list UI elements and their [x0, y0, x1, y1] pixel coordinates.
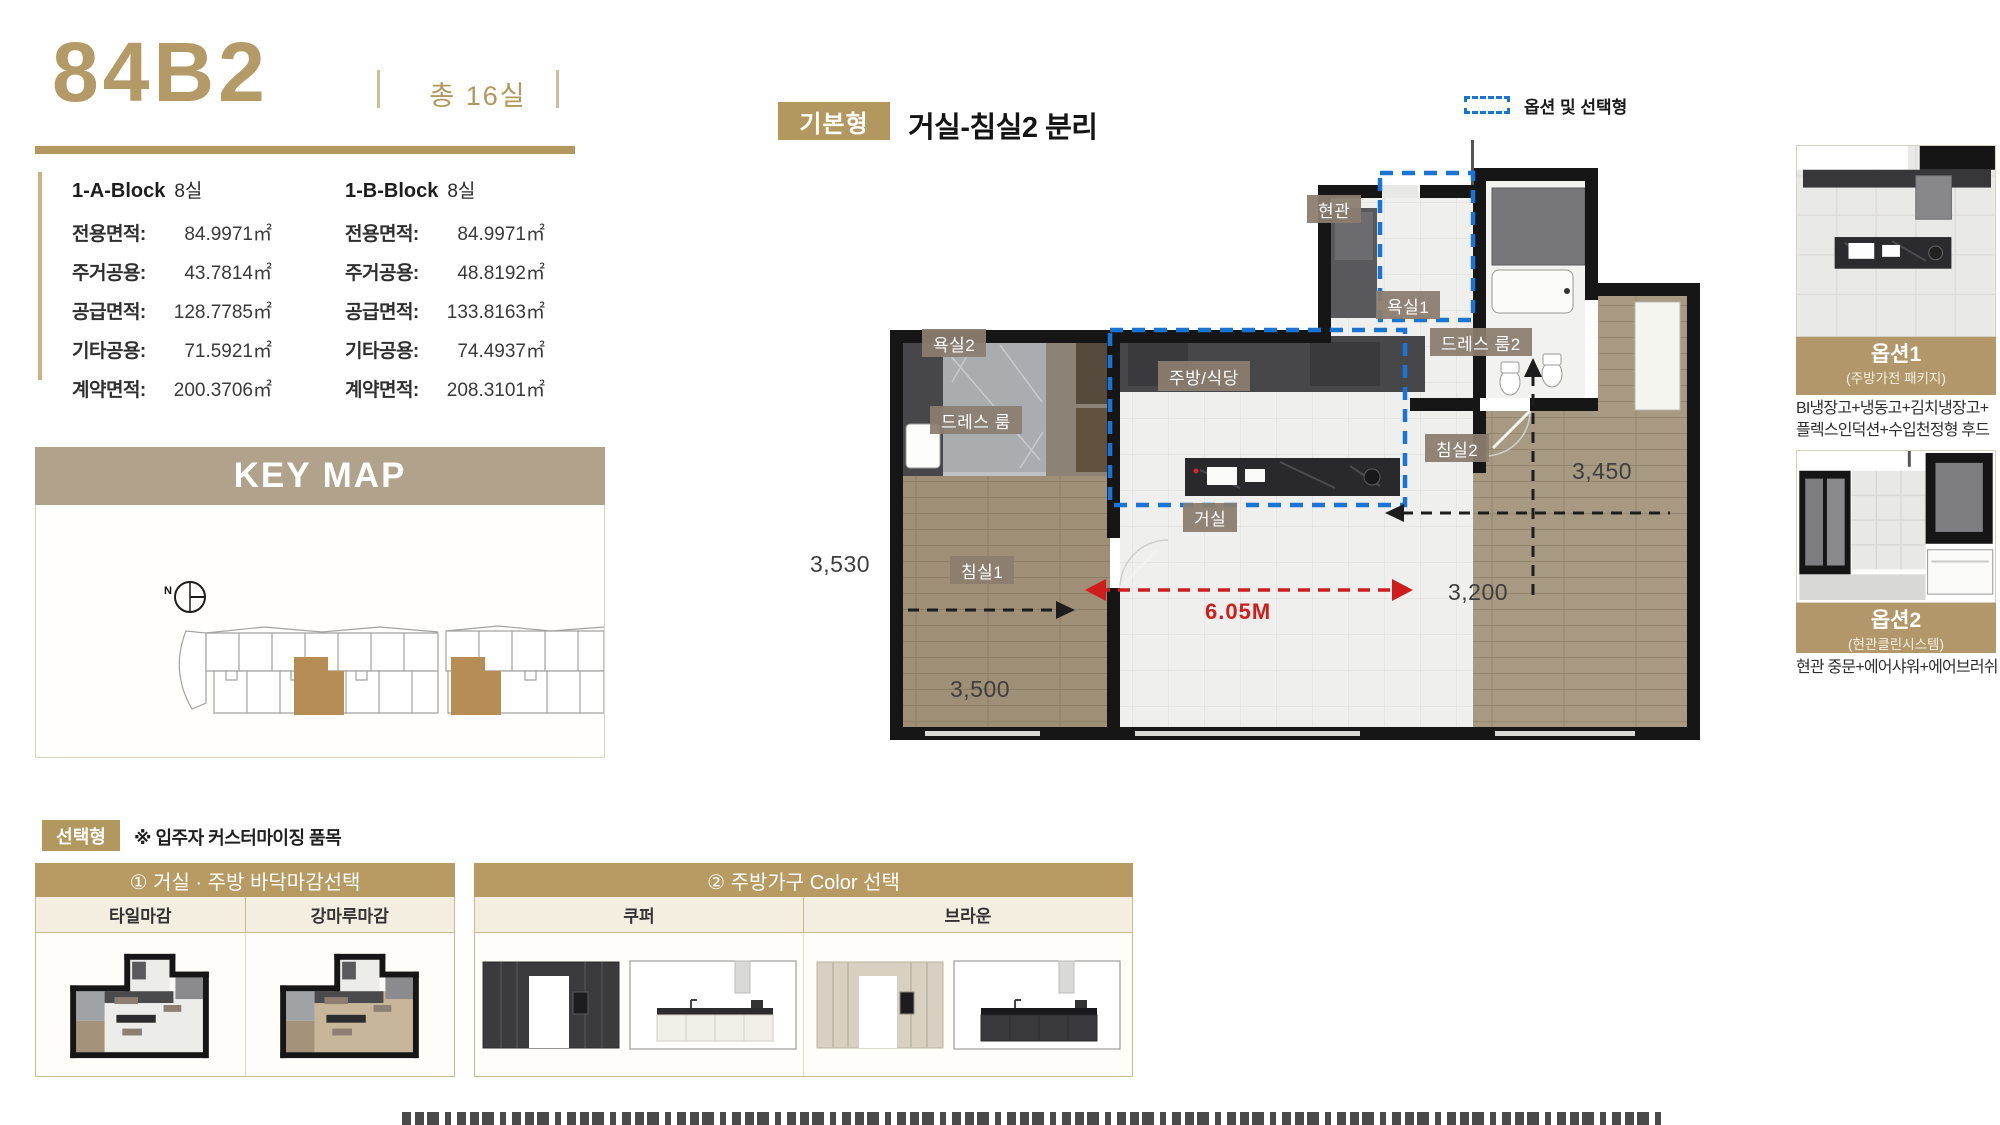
panel1-box: 타일마감 강마루마감	[35, 897, 455, 1077]
block-name: 1-A-Block	[72, 180, 165, 202]
panel1-title: ① 거실 · 주방 바닥마감선택	[130, 866, 361, 895]
option1-band: 옵션1 (주방가전 패키지)	[1796, 337, 1996, 395]
select-type-badge: 선택형	[42, 820, 120, 851]
dim-3200: 3,200	[1448, 579, 1508, 606]
panel2-title-bar: ② 주방가구 Color 선택	[474, 863, 1133, 897]
table-left-border	[38, 172, 42, 380]
dressroom2-closet	[1492, 188, 1585, 265]
living-floor	[1120, 336, 1473, 727]
tile-finish-thumbnail	[36, 933, 245, 1076]
room-label-dress2: 드레스 룸2	[1430, 328, 1532, 356]
table-row: 계약면적:200.3706㎡	[72, 375, 272, 402]
room-label-entrance: 현관	[1307, 195, 1361, 223]
keymap-panel: N	[35, 505, 605, 758]
option1-description: BI냉장고+냉동고+김치냉장고+ 플렉스인덕션+수입천정형 후드	[1796, 398, 2000, 442]
dim-3530: 3,530	[810, 551, 870, 578]
option2-band: 옵션2 (현관클린시스템)	[1796, 603, 1996, 653]
room-label-living: 거실	[1183, 503, 1237, 532]
keymap-title-bar: KEY MAP	[35, 447, 605, 505]
option-legend-label: 옵션 및 선택형	[1524, 93, 1627, 118]
block-b-header: 1-B-Block8실	[345, 176, 545, 203]
table-row: 주거공용:43.7814㎡	[72, 258, 272, 285]
block-rooms: 8실	[174, 181, 202, 202]
brochure-page: 84B2 총 16실 1-A-Block8실 전용면적:84.9971㎡ 주거공…	[0, 0, 2000, 1125]
brown-thumbnails	[803, 933, 1132, 1076]
brown-cabinet-image	[815, 960, 945, 1050]
brown-counter-image	[953, 960, 1121, 1050]
table-row: 계약면적:208.3101㎡	[345, 375, 545, 402]
table-row: 전용면적:84.9971㎡	[345, 219, 545, 246]
copper-cabinet-image	[481, 960, 621, 1050]
table-row: 기타공용:74.4937㎡	[345, 336, 545, 363]
option-legend-swatch	[1464, 96, 1510, 114]
room-label-bed1: 침실1	[950, 556, 1014, 584]
mini-floorplan-tile	[64, 946, 216, 1064]
table-row: 전용면적:84.9971㎡	[72, 219, 272, 246]
panel2-box: 쿠퍼 브라운	[474, 897, 1133, 1077]
keymap-building-outline	[206, 626, 604, 713]
table-row: 주거공용:48.8192㎡	[345, 258, 545, 285]
block-b-column: 1-B-Block8실 전용면적:84.9971㎡ 주거공용:48.8192㎡ …	[345, 176, 545, 414]
table-row: 기타공용:71.5921㎡	[72, 336, 272, 363]
room-label-bed2: 침실2	[1425, 434, 1489, 462]
panel1-column-headers: 타일마감 강마루마감	[36, 897, 454, 933]
option1-image	[1796, 145, 1996, 337]
column-tile-finish: 타일마감	[36, 897, 245, 932]
room-label-dress: 드레스 룸	[930, 406, 1022, 434]
option2-description: 현관 중문+에어샤워+에어브러쉬	[1796, 657, 2000, 679]
dim-605m: 6.05M	[1205, 599, 1271, 625]
block-name: 1-B-Block	[345, 180, 438, 202]
divider-bar	[377, 70, 380, 108]
cropped-disclaimer-text	[402, 1112, 1662, 1125]
block-a-column: 1-A-Block8실 전용면적:84.9971㎡ 주거공용:43.7814㎡ …	[72, 176, 272, 414]
option2-image	[1796, 450, 1996, 603]
column-wood-finish: 강마루마감	[245, 897, 455, 932]
copper-counter-image	[629, 960, 797, 1050]
room-label-kitchen: 주방/식당	[1158, 361, 1250, 391]
floor-plan-drawing	[880, 130, 1710, 755]
gold-rule	[35, 146, 575, 154]
copper-thumbnails	[475, 933, 803, 1076]
dim-3500: 3,500	[950, 676, 1010, 703]
keymap-curved-wing	[179, 631, 206, 709]
option2-subtitle: (현관클린시스템)	[1796, 633, 1996, 659]
room-label-bath2: 욕실2	[922, 329, 986, 357]
keymap-title: KEY MAP	[234, 456, 407, 496]
bathtub	[1492, 270, 1573, 313]
block-a-header: 1-A-Block8실	[72, 176, 272, 203]
option1-subtitle: (주방가전 패키지)	[1796, 367, 1996, 393]
column-brown: 브라운	[803, 897, 1132, 932]
mini-floorplan-wood	[274, 946, 426, 1064]
panel1-title-bar: ① 거실 · 주방 바닥마감선택	[35, 863, 455, 897]
dim-3450: 3,450	[1572, 458, 1632, 485]
total-rooms-label: 총 16실	[400, 74, 556, 113]
option1-title: 옵션1	[1796, 337, 1996, 367]
column-copper: 쿠퍼	[475, 897, 803, 932]
panel2-title: ② 주방가구 Color 선택	[707, 866, 900, 895]
wood-finish-thumbnail	[245, 933, 455, 1076]
keymap-drawing: N	[36, 505, 604, 756]
divider-bar	[556, 70, 559, 108]
table-row: 공급면적:128.7785㎡	[72, 297, 272, 324]
table-row: 공급면적:133.8163㎡	[345, 297, 545, 324]
unit-code-title: 84B2	[52, 30, 269, 114]
bedroom2-closet	[1635, 302, 1680, 410]
room-label-bath1: 욕실1	[1376, 291, 1440, 319]
customizing-note: ※ 입주자 커스터마이징 품목	[134, 824, 341, 850]
panel2-column-headers: 쿠퍼 브라운	[475, 897, 1132, 933]
block-rooms: 8실	[447, 181, 475, 202]
north-label: N	[164, 585, 172, 597]
type-badge: 기본형	[778, 102, 890, 140]
option2-title: 옵션2	[1796, 603, 1996, 633]
